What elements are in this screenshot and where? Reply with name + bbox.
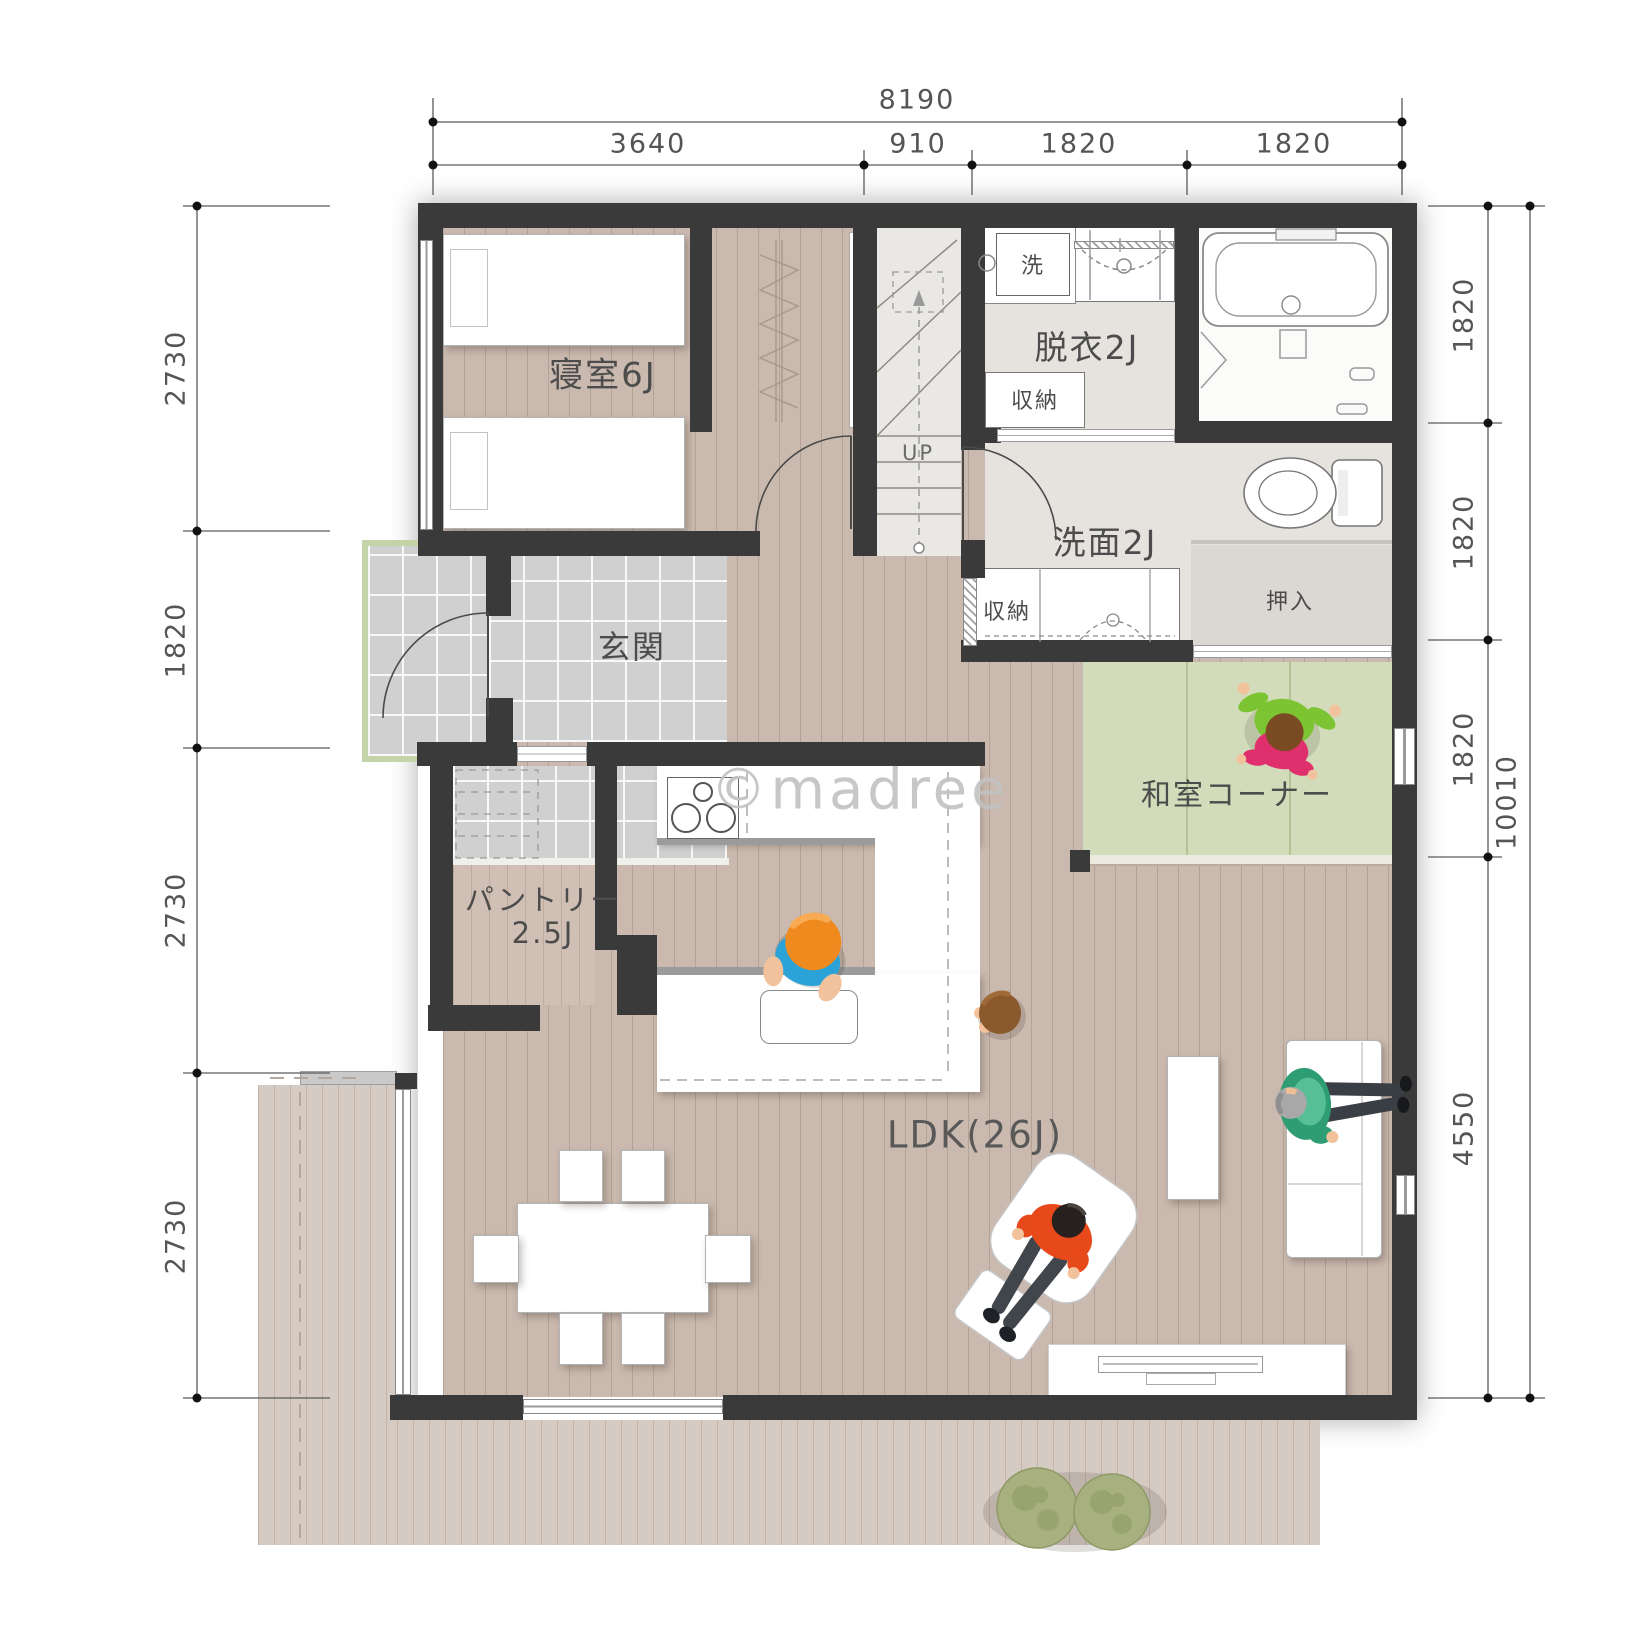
tatami-edge: [1083, 855, 1392, 866]
wall-pantry-south: [428, 1005, 540, 1031]
label-storage-datsui: 収納: [1011, 383, 1059, 415]
vanity-hatch-strip: [1074, 241, 1174, 249]
wall-pantry-divider: [595, 766, 617, 950]
kitchen-island-edge: [657, 967, 875, 975]
deck-bottom: [397, 1420, 1320, 1545]
wall-closet-divider: [690, 228, 712, 432]
wall-island-stub: [617, 935, 657, 1015]
wall-bottom-left: [390, 1395, 523, 1420]
kitchen-aisle-edge: [657, 838, 875, 845]
tv-stand: [1146, 1373, 1216, 1385]
room-label-pantry-1: パントリー: [465, 877, 621, 919]
dim-left-4: 2730: [161, 1198, 192, 1275]
floor-porch: [362, 540, 488, 762]
room-label-pantry-2: 2.5J: [512, 916, 575, 950]
vanity-datsui: [1073, 226, 1175, 302]
floor-plan-canvas: 寝室6J 脱衣2J 洗面2J 玄関 パントリー 2.5J 和室コーナー LDK(…: [0, 0, 1651, 1651]
tatami-line-1: [1186, 662, 1188, 855]
wall-right: [1392, 203, 1417, 1420]
dim-left-2: 1820: [161, 602, 192, 679]
wall-stairs-west: [853, 228, 877, 556]
window-ldk-se: [1396, 1175, 1415, 1215]
slider-kitchen-hall: [517, 746, 587, 762]
dining-chair-5: [473, 1235, 519, 1283]
dim-right-4: 4550: [1449, 1090, 1480, 1167]
bed-lower-pillow: [450, 432, 488, 510]
label-up: UP: [902, 441, 934, 465]
floor-bath: [1199, 228, 1392, 421]
window-bedroom-west: [420, 240, 433, 530]
dining-table: [517, 1203, 709, 1313]
tv: [1098, 1356, 1263, 1373]
floor-stairs: [877, 228, 961, 556]
tatami-line-2: [1289, 662, 1291, 855]
dining-chair-2: [621, 1150, 665, 1202]
label-storage-senmen: 収納: [983, 594, 1031, 626]
dim-top-total: 8190: [879, 85, 956, 116]
dim-right-2: 1820: [1449, 494, 1480, 571]
dim-right-3: 1820: [1449, 711, 1480, 788]
dining-chair-1: [559, 1150, 603, 1202]
deck-left: [258, 1085, 397, 1545]
slider-oshiire: [1193, 645, 1392, 658]
window-tatami-east: [1394, 728, 1415, 785]
room-label-datsui: 脱衣2J: [1035, 321, 1140, 369]
tatami-post: [1070, 850, 1090, 872]
sofa: [1286, 1040, 1382, 1258]
wall-bedroom-south: [418, 531, 760, 556]
room-label-genkan: 玄関: [598, 622, 666, 668]
wall-entry-lower: [486, 698, 513, 766]
wall-top: [418, 203, 1417, 228]
dim-right-total: 10010: [1492, 754, 1523, 850]
wall-window-cap: [395, 1073, 417, 1089]
deck-step: [300, 1071, 397, 1085]
slider-datsui-south: [997, 429, 1175, 442]
window-ldk-west: [395, 1089, 411, 1395]
room-label-oshiire: 押入: [1266, 584, 1314, 616]
wall-bath-south: [1175, 421, 1417, 443]
kitchen-sink: [760, 990, 858, 1044]
wall-stairs-east: [961, 228, 985, 450]
room-label-washitsu: 和室コーナー: [1141, 770, 1333, 814]
slider-senmen-west: [963, 578, 977, 646]
coffee-table: [1167, 1056, 1219, 1200]
genkan-threshold: [453, 858, 729, 865]
wall-entry-upper: [486, 556, 511, 616]
watermark: ©madree: [710, 758, 1009, 823]
room-label-ldk: LDK(26J): [887, 1114, 1063, 1157]
dim-top-1: 3640: [610, 129, 687, 160]
wall-bottom-right: [723, 1395, 1417, 1420]
dim-right-1: 1820: [1449, 277, 1480, 354]
room-label-senmen: 洗面2J: [1053, 516, 1158, 564]
wall-senmen-south: [961, 640, 1193, 662]
dim-left-1: 2730: [161, 330, 192, 407]
wall-senmen-west-stub: [961, 540, 985, 578]
room-label-bedroom: 寝室6J: [549, 348, 657, 397]
dining-chair-4: [621, 1313, 665, 1365]
dim-top-2: 910: [889, 129, 947, 160]
dim-left-3: 2730: [161, 872, 192, 949]
floor-tatami: [1083, 662, 1392, 855]
wall-datsui-bath: [1175, 228, 1199, 443]
bed-upper-pillow: [450, 249, 488, 327]
window-ldk-south: [523, 1399, 723, 1414]
label-laundry: 洗: [1021, 248, 1045, 280]
dim-top-3: 1820: [1041, 129, 1118, 160]
wall-pantry-west: [430, 742, 453, 1012]
dining-chair-6: [705, 1235, 751, 1283]
dining-chair-3: [559, 1313, 603, 1365]
wall-datsui-south-stub: [961, 428, 1001, 443]
dim-top-4: 1820: [1256, 129, 1333, 160]
